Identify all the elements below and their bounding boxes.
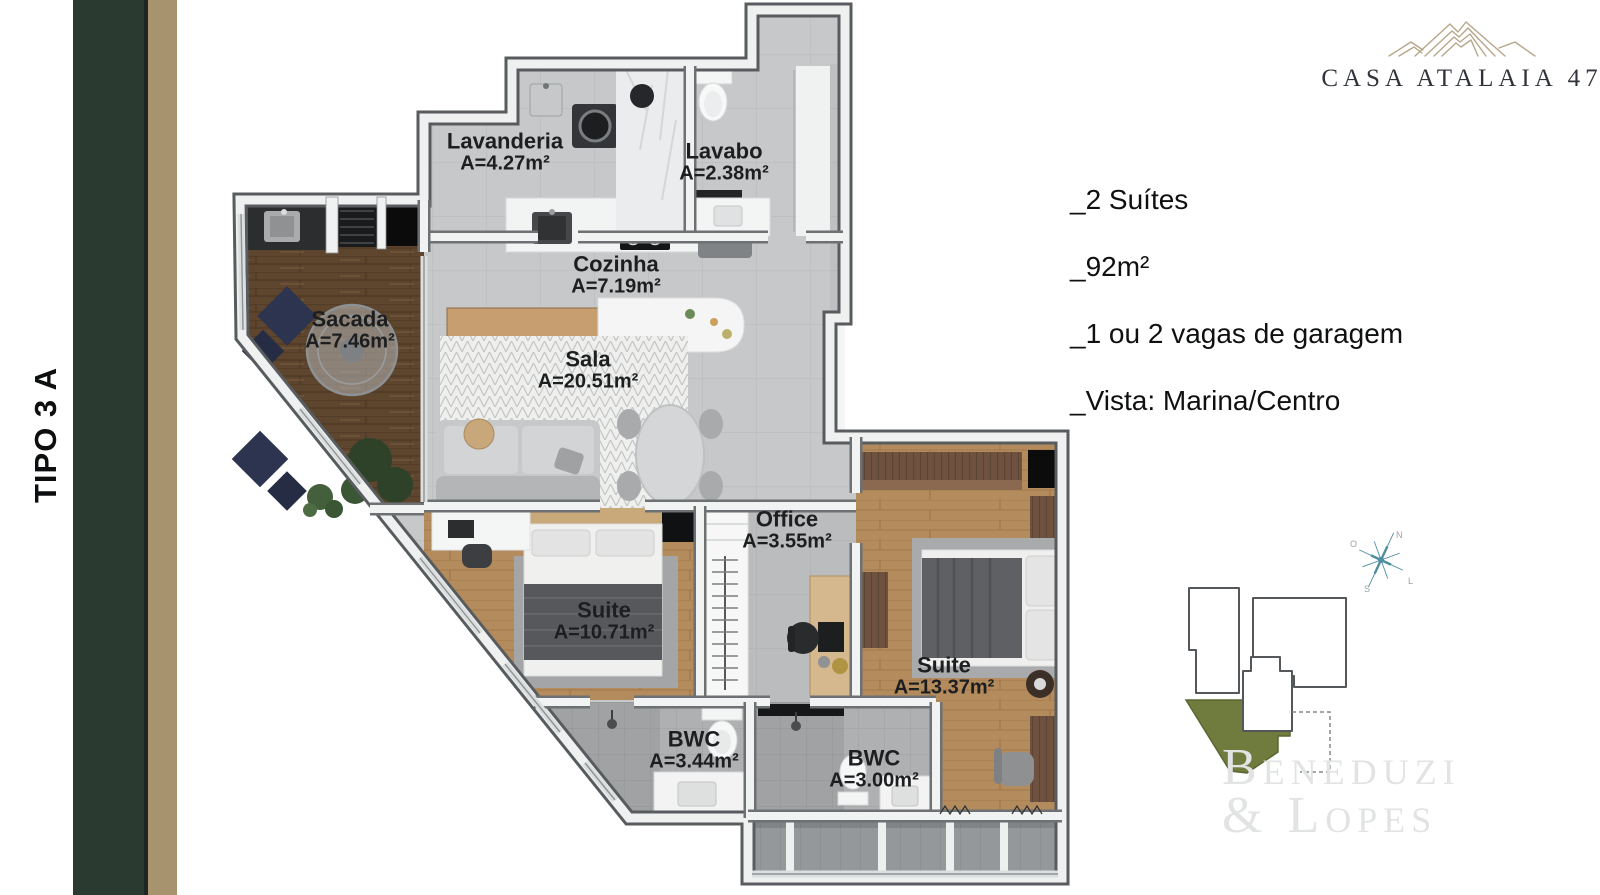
room-name: Suite [554, 598, 655, 622]
room-area: A=3.55m² [742, 531, 832, 553]
room-label-cozinha: Cozinha A=7.19m² [571, 252, 661, 297]
room-area: A=7.19m² [571, 276, 661, 298]
brand-name: CASA ATALAIA 47 [1312, 65, 1600, 93]
room-label-office: Office A=3.55m² [742, 507, 832, 552]
dining-table [636, 405, 704, 505]
room-name: Lavanderia [447, 129, 563, 153]
spec-view: _Vista: Marina/Centro [1070, 383, 1403, 419]
compass-e: L [1408, 576, 1413, 586]
spec-suites: _2 Suítes [1070, 182, 1403, 218]
floorplan-page: { "left_banner": { "type_label": "TIPO 3… [0, 0, 1600, 895]
room-name: Office [742, 507, 832, 531]
room-name: Lavabo [679, 139, 769, 163]
specs-list: _2 Suítes _92m² _1 ou 2 vagas de garagem… [1070, 182, 1403, 450]
room-label-sacada: Sacada A=7.46m² [305, 307, 395, 352]
room-label-lavabo: Lavabo A=2.38m² [679, 139, 769, 184]
room-area: A=10.71m² [554, 622, 655, 644]
room-label-lavanderia: Lavanderia A=4.27m² [447, 129, 563, 174]
compass-icon: N O S L [1347, 523, 1416, 598]
room-area: A=4.27m² [447, 153, 563, 175]
room-name: BWC [829, 746, 919, 770]
compass-n: N [1396, 530, 1403, 540]
room-name: Sacada [305, 307, 395, 331]
room-name: Suite [894, 653, 995, 677]
spec-area: _92m² [1070, 249, 1403, 285]
room-label-sala: Sala A=20.51m² [538, 347, 639, 392]
room-area: A=2.38m² [679, 163, 769, 185]
room-label-suite1: Suite A=10.71m² [554, 598, 655, 643]
sideboard [447, 308, 598, 340]
room-area: A=7.46m² [305, 331, 395, 353]
room-label-bwc2: BWC A=3.00m² [829, 746, 919, 791]
watermark-line1: Beneduzi [1222, 744, 1461, 792]
compass-s: S [1364, 584, 1370, 594]
room-name: Cozinha [571, 252, 661, 276]
wardrobe-nook [702, 508, 748, 698]
brand-logo: CASA ATALAIA 47 [1312, 12, 1600, 93]
room-name: BWC [649, 727, 739, 751]
room-area: A=3.44m² [649, 751, 739, 773]
room-area: A=13.37m² [894, 677, 995, 699]
mountain-contours-icon [1387, 12, 1537, 58]
spec-parking: _1 ou 2 vagas de garagem [1070, 316, 1403, 352]
room-label-suite2: Suite A=13.37m² [894, 653, 995, 698]
room-area: A=20.51m² [538, 371, 639, 393]
room-area: A=3.00m² [829, 770, 919, 792]
room-label-bwc1: BWC A=3.44m² [649, 727, 739, 772]
watermark-line2: & Lopes [1222, 792, 1461, 840]
room-name: Sala [538, 347, 639, 371]
compass-w: O [1350, 539, 1357, 549]
watermark: Beneduzi & Lopes [1222, 744, 1461, 840]
